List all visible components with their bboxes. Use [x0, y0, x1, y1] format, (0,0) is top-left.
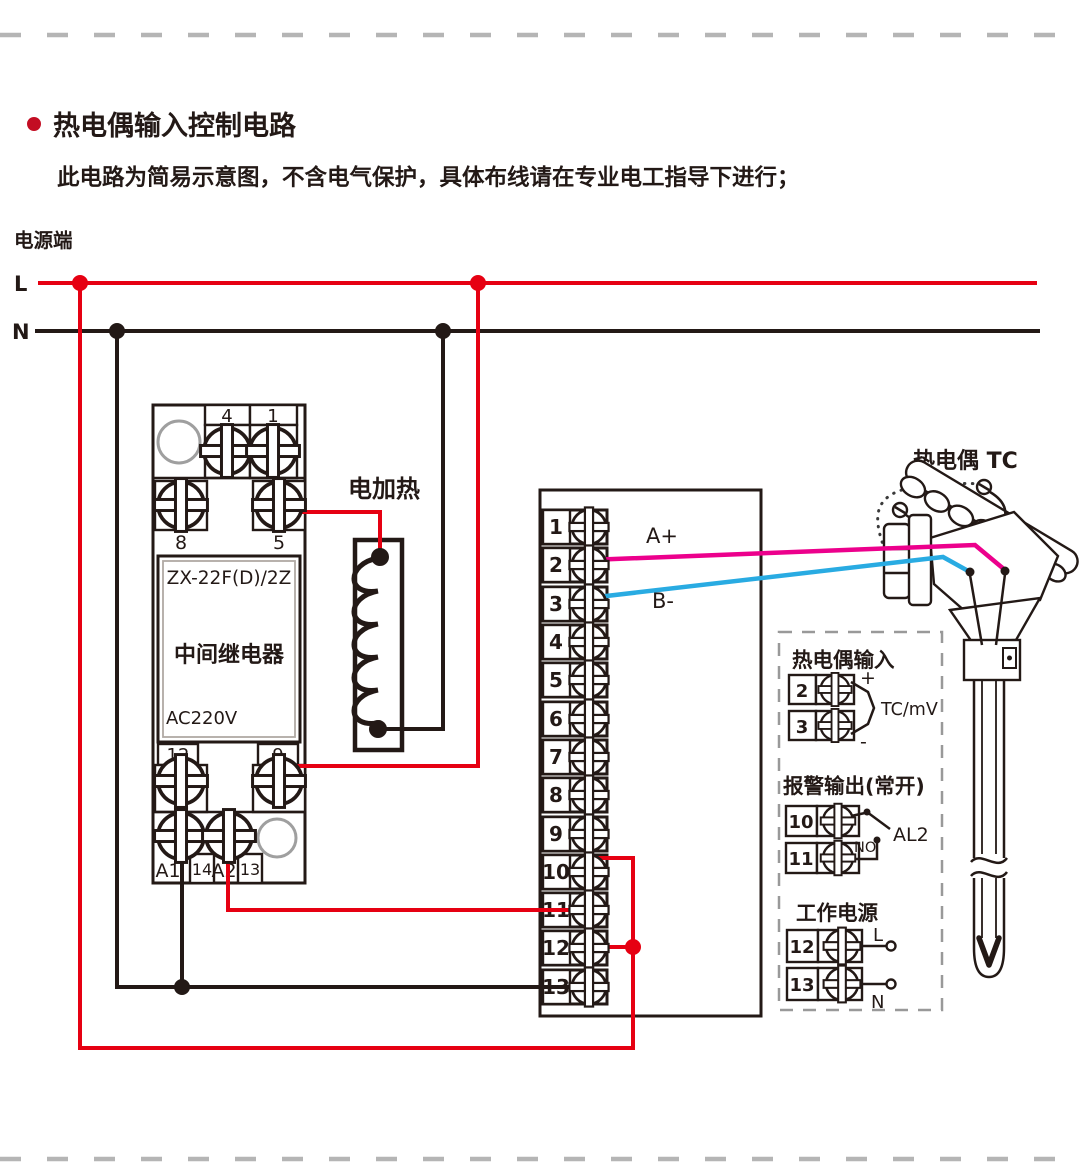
relay-terminal-8-label: 8 — [175, 532, 187, 554]
terminal-4-label: 4 — [549, 630, 563, 654]
terminal-8-label: 8 — [549, 783, 563, 807]
terminal-3-label: 3 — [549, 592, 563, 616]
probe-tip-v-mark — [979, 938, 999, 965]
terminal-2-label: 2 — [549, 553, 563, 577]
junction-dot — [470, 275, 486, 291]
relay-terminal-5-label: 5 — [273, 532, 285, 554]
page-title: 热电偶输入控制电路 — [53, 110, 297, 142]
al2-label: AL2 — [893, 824, 929, 846]
break-mark — [971, 872, 1007, 877]
relay-model: ZX-22F(D)/2Z — [167, 568, 292, 589]
terminal-12-label: 12 — [542, 936, 570, 960]
terminal-1-label: 1 — [549, 515, 563, 539]
line-n-label: N — [12, 320, 30, 344]
relay-name: 中间继电器 — [174, 642, 285, 668]
relay-voltage: AC220V — [166, 708, 238, 729]
title-block: 热电偶输入控制电路 此电路为简易示意图，不含电气保护，具体布线请在专业电工指导下… — [27, 110, 800, 191]
relay-terminal-14-label: 14 — [192, 860, 212, 879]
tc-input-section: 热电偶输入 2 3 + - TC/mV — [789, 648, 938, 753]
panel-terminal-3-label: 3 — [796, 717, 809, 738]
panel-terminal-2-label: 2 — [796, 681, 809, 702]
relay-mount-hole-icon — [258, 819, 296, 857]
line-l-label: L — [14, 272, 27, 296]
page-subtitle: 此电路为简易示意图，不含电气保护，具体布线请在专业电工指导下进行； — [57, 164, 800, 191]
relay-mount-hole-icon — [158, 421, 200, 463]
tc-lead-dot — [966, 568, 975, 577]
heater-label: 电加热 — [348, 475, 420, 503]
junction-dot — [435, 323, 451, 339]
a-plus-label: A+ — [646, 524, 678, 548]
terminal-10-label: 10 — [542, 860, 570, 884]
panel-terminal-13-label: 13 — [789, 975, 814, 996]
b-minus-label: B- — [652, 589, 674, 613]
power-rails: 电源端 L N — [12, 229, 1040, 344]
title-bullet-icon — [27, 117, 41, 131]
heater-bottom-terminal-dot — [369, 720, 387, 738]
terminal-detail-panel: 热电偶输入 2 3 + - TC/mV 报警输出(常开) 10 11 NO — [779, 632, 942, 1013]
alarm-title: 报警输出(常开) — [783, 774, 925, 798]
n-contact-circle — [887, 980, 896, 989]
panel-terminal-10-label: 10 — [788, 812, 813, 833]
break-mark — [971, 858, 1007, 863]
working-power-title: 工作电源 — [796, 901, 878, 925]
heater-outline — [355, 540, 402, 750]
probe-sheath — [971, 680, 1007, 977]
junction-dot — [625, 939, 641, 955]
no-label: NO — [854, 840, 876, 856]
tc-lead-dot — [1001, 567, 1010, 576]
terminal-6-label: 6 — [549, 707, 563, 731]
thermocouple-wiring-diagram: 热电偶输入控制电路 此电路为简易示意图，不含电气保护，具体布线请在专业电工指导下… — [0, 0, 1080, 1166]
polarity-plus-label: + — [860, 667, 876, 689]
terminal-9-label: 9 — [549, 822, 563, 846]
power-n-label: N — [871, 992, 884, 1013]
wiring-diagram-page: 热电偶输入控制电路 此电路为简易示意图，不含电气保护，具体布线请在专业电工指导下… — [0, 0, 1080, 1166]
junction-dot — [109, 323, 125, 339]
tc-input-title: 热电偶输入 — [792, 648, 895, 672]
l-contact-circle — [887, 942, 896, 951]
terminal-5-label: 5 — [549, 668, 563, 692]
junction-dot — [174, 979, 190, 995]
polarity-minus-label: - — [860, 731, 867, 753]
junction-dot — [72, 275, 88, 291]
power-terminal-label: 电源端 — [14, 229, 73, 252]
terminal-7-label: 7 — [549, 745, 563, 769]
power-l-label: L — [873, 925, 883, 946]
panel-terminal-11-label: 11 — [788, 849, 813, 870]
electric-heater: 电加热 — [348, 475, 420, 750]
heater-top-terminal-dot — [371, 548, 389, 566]
relay-terminal-13-label: 13 — [240, 860, 260, 879]
tc-signal-label: TC/mV — [880, 700, 938, 720]
panel-terminal-12-label: 12 — [789, 937, 814, 958]
